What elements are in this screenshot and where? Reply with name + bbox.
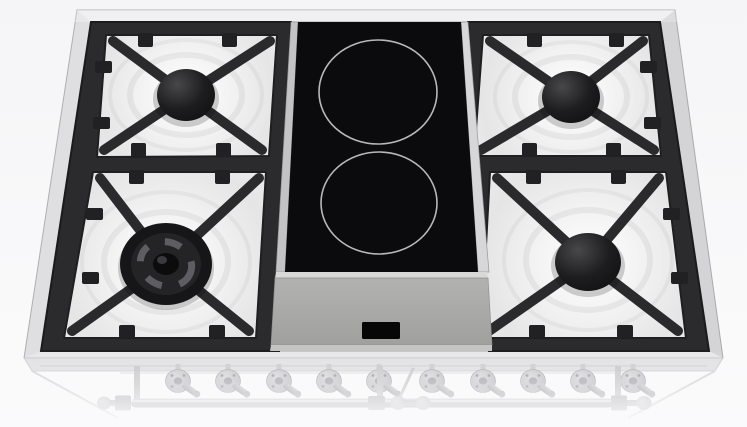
burner-cap-rear-right [542, 71, 600, 123]
cooktop [24, 10, 723, 371]
induction-section [270, 22, 492, 351]
burner-cap-rear-left [157, 69, 215, 121]
induction-glass [285, 22, 478, 272]
render-canvas: Dual-fuel 90cm range cooktop, 3D product… [0, 0, 747, 427]
cooktop-render: Dual-fuel 90cm range cooktop, 3D product… [0, 0, 747, 427]
rim-top-highlight [75, 10, 677, 22]
bottom-fade [0, 350, 747, 427]
control-display [362, 322, 400, 339]
wok-burner-front-left [118, 223, 214, 310]
control-panel-lip [275, 272, 488, 278]
burner-cap-front-right [555, 233, 621, 291]
